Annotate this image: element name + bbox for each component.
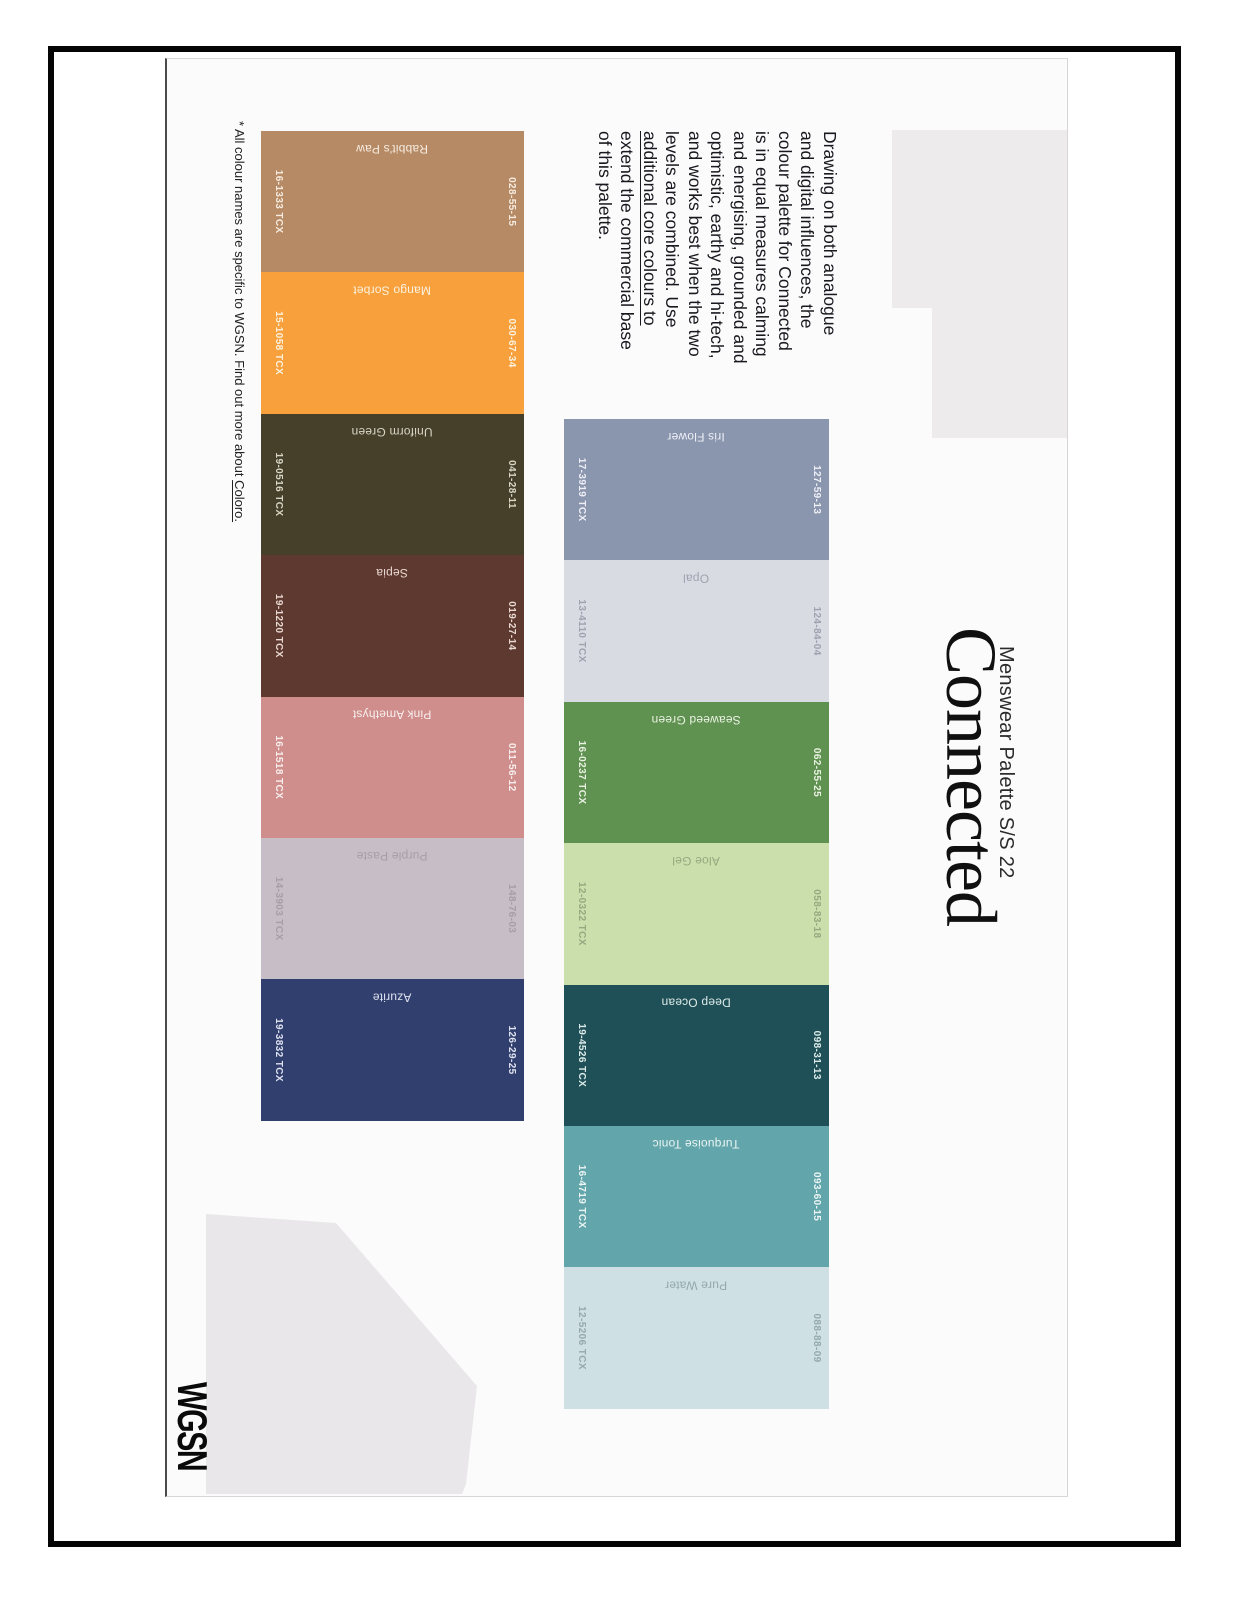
- paragraph-line: and energising, grounded and: [729, 131, 752, 364]
- chip-tcx-code: 12-0322 TCX: [576, 843, 587, 984]
- color-chip: 093-60-15 Turquoise Tonic 16-4719 TCX: [564, 1126, 829, 1267]
- paragraph-line: extend the commercial base: [616, 131, 639, 364]
- footnote-text: * All colour names are specific to WGSN.…: [232, 121, 247, 480]
- chip-tcx-code: 13-4110 TCX: [576, 560, 587, 701]
- link-additional-core-colours[interactable]: additional core colours to: [640, 131, 660, 326]
- chip-tcx-code: 19-4526 TCX: [576, 985, 587, 1126]
- paragraph-line: levels are combined. Use: [661, 131, 684, 364]
- chip-coloro-code: 088-88-09: [811, 1267, 822, 1408]
- chip-coloro-code: 093-60-15: [811, 1126, 822, 1267]
- chip-coloro-code: 124-84-04: [811, 560, 822, 701]
- chip-coloro-code: 058-83-18: [811, 843, 822, 984]
- decorative-gray-polygon: [206, 1214, 502, 1494]
- paragraph-line: and works best when the two: [684, 131, 707, 364]
- paragraph-line: of this palette.: [594, 131, 617, 364]
- page: Menswear Palette S/S 22 Connected Drawin…: [0, 0, 1235, 1598]
- paragraph-line: Drawing on both analogue: [819, 131, 842, 364]
- chip-tcx-code: 19-0516 TCX: [273, 414, 284, 555]
- chip-color-name: Opal: [683, 571, 709, 585]
- chip-tcx-code: 12-5206 TCX: [576, 1267, 587, 1408]
- chip-tcx-code: 16-1518 TCX: [273, 697, 284, 838]
- chip-color-name: Purple Paste: [357, 849, 428, 863]
- paragraph-line: and digital influences, the: [796, 131, 819, 364]
- chip-color-name: Iris Flower: [668, 430, 726, 444]
- chip-color-name: Uniform Green: [352, 425, 433, 439]
- chip-tcx-code: 17-3919 TCX: [576, 419, 587, 560]
- color-chip: 028-55-15 Rabbit's Paw 16-1333 TCX: [261, 131, 524, 272]
- paragraph-line: optimistic, earthy and hi-tech,: [706, 131, 729, 364]
- wgsn-logo: WGSN: [171, 1382, 213, 1470]
- chip-coloro-code: 126-29-25: [506, 979, 517, 1120]
- color-chip: 030-67-34 Mango Sorbet 15-1058 TCX: [261, 272, 524, 413]
- color-chip: 127-59-13 Iris Flower 17-3919 TCX: [564, 419, 829, 560]
- chip-coloro-code: 019-27-14: [506, 555, 517, 696]
- footnote: * All colour names are specific to WGSN.…: [232, 121, 247, 522]
- chip-color-name: Pink Amethyst: [353, 708, 432, 722]
- color-chip: 148-76-03 Purple Paste 14-3903 TCX: [261, 838, 524, 979]
- color-chip: 126-29-25 Azurite 19-3832 TCX: [261, 979, 524, 1120]
- paragraph-line: is in equal measures calming: [751, 131, 774, 364]
- chip-coloro-code: 148-76-03: [506, 838, 517, 979]
- decorative-gray-block: [892, 130, 1067, 308]
- color-chip: 058-83-18 Aloe Gel 12-0322 TCX: [564, 843, 829, 984]
- color-chip: 019-27-14 Sepia 19-1220 TCX: [261, 555, 524, 696]
- chip-color-name: Seaweed Green: [652, 713, 741, 727]
- color-chip: 041-28-11 Uniform Green 19-0516 TCX: [261, 414, 524, 555]
- chip-tcx-code: 16-4719 TCX: [576, 1126, 587, 1267]
- color-chip: 124-84-04 Opal 13-4110 TCX: [564, 560, 829, 701]
- color-chip: 098-31-13 Deep Ocean 19-4526 TCX: [564, 985, 829, 1126]
- palette-row-main: 127-59-13 Iris Flower 17-3919 TCX 124-84…: [564, 419, 829, 1409]
- chip-coloro-code: 127-59-13: [811, 419, 822, 560]
- palette-row-core-colours: 028-55-15 Rabbit's Paw 16-1333 TCX 030-6…: [261, 131, 524, 1121]
- chip-color-name: Turquoise Tonic: [653, 1137, 740, 1151]
- chip-color-name: Pure Water: [665, 1278, 727, 1292]
- footnote-link-coloro[interactable]: Coloro.: [232, 480, 247, 522]
- chip-coloro-code: 041-28-11: [506, 414, 517, 555]
- chip-color-name: Rabbit's Paw: [356, 142, 428, 156]
- intro-paragraph: Drawing on both analogue and digital inf…: [594, 131, 842, 364]
- chip-color-name: Sepia: [377, 566, 409, 580]
- color-chip: 062-55-25 Seaweed Green 16-0237 TCX: [564, 702, 829, 843]
- chip-color-name: Aloe Gel: [673, 854, 721, 868]
- chip-coloro-code: 098-31-13: [811, 985, 822, 1126]
- decorative-gray-block: [932, 308, 1067, 438]
- chip-coloro-code: 062-55-25: [811, 702, 822, 843]
- chip-tcx-code: 16-0237 TCX: [576, 702, 587, 843]
- chip-coloro-code: 011-56-12: [506, 697, 517, 838]
- palette-title: Connected: [935, 627, 1007, 926]
- chip-color-name: Deep Ocean: [662, 996, 731, 1010]
- chip-tcx-code: 16-1333 TCX: [273, 131, 284, 272]
- chip-color-name: Mango Sorbet: [354, 283, 432, 297]
- palette-slide: Menswear Palette S/S 22 Connected Drawin…: [165, 58, 1068, 1497]
- color-chip: 011-56-12 Pink Amethyst 16-1518 TCX: [261, 697, 524, 838]
- chip-tcx-code: 14-3903 TCX: [273, 838, 284, 979]
- chip-tcx-code: 19-3832 TCX: [273, 979, 284, 1120]
- chip-tcx-code: 19-1220 TCX: [273, 555, 284, 696]
- chip-color-name: Azurite: [373, 990, 412, 1004]
- color-chip: 088-88-09 Pure Water 12-5206 TCX: [564, 1267, 829, 1408]
- chip-tcx-code: 15-1058 TCX: [273, 272, 284, 413]
- chip-coloro-code: 028-55-15: [506, 131, 517, 272]
- paragraph-line: colour palette for Connected: [774, 131, 797, 364]
- chip-coloro-code: 030-67-34: [506, 272, 517, 413]
